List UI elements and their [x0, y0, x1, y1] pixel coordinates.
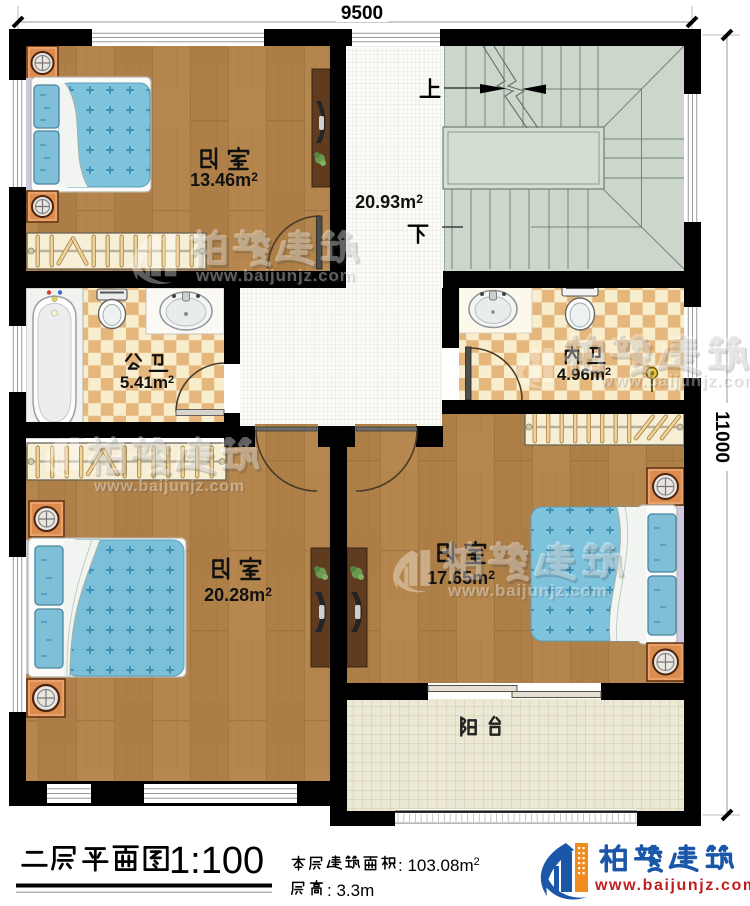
svg-text:www.baijunjz.com: www.baijunjz.com: [594, 877, 750, 894]
svg-text:9500: 9500: [341, 3, 383, 24]
svg-text:13.46m2: 13.46m2: [190, 170, 258, 190]
svg-text:www.baijunjz.com: www.baijunjz.com: [195, 266, 356, 285]
svg-text:1:100: 1:100: [169, 840, 264, 882]
svg-text:20.28m2: 20.28m2: [204, 585, 272, 605]
svg-text:: 103.08m2: : 103.08m2: [398, 856, 480, 875]
svg-text:11000: 11000: [711, 411, 732, 463]
svg-text:20.93m2: 20.93m2: [355, 192, 423, 212]
svg-text:www.baijunjz.com: www.baijunjz.com: [599, 371, 750, 390]
svg-text:www.baijunjz.com: www.baijunjz.com: [93, 478, 245, 495]
svg-text:www.baijunjz.com: www.baijunjz.com: [447, 581, 608, 600]
svg-text:: 3.3m: : 3.3m: [327, 881, 374, 900]
svg-text:5.41m2: 5.41m2: [120, 373, 174, 392]
